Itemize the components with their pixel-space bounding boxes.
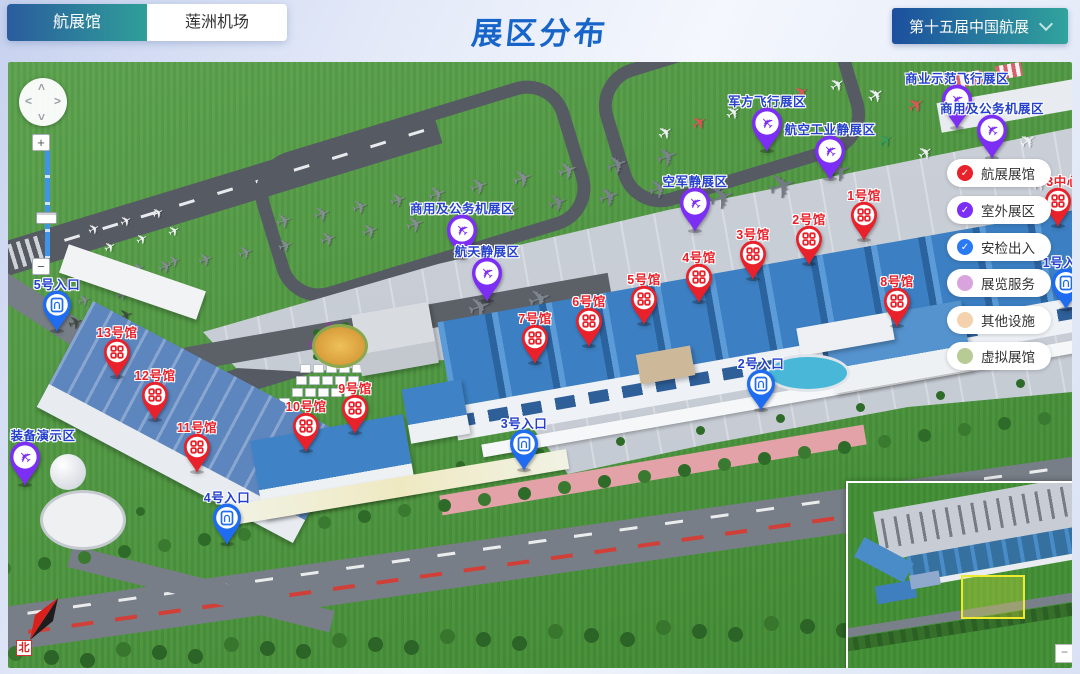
tree: [656, 620, 671, 635]
hall-marker-6号馆[interactable]: 6号馆: [574, 306, 604, 348]
tent: [300, 364, 311, 373]
tree: [78, 551, 91, 564]
tree: [878, 435, 891, 448]
hall-pin-icon: [849, 200, 879, 242]
zoom-out-button[interactable]: −: [32, 258, 50, 275]
entrance-pin-icon: [745, 368, 777, 412]
hall-marker-3号馆[interactable]: 3号馆: [738, 239, 768, 281]
entrance-pin-icon: [508, 428, 540, 472]
tree: [584, 628, 599, 643]
tree: [80, 653, 95, 668]
hall-pin-icon: [291, 411, 321, 453]
tree: [692, 624, 707, 639]
exhibition-map[interactable]: ✈✈✈✈✈✈✈✈✈✈✈✈✈✈✈✈✈✈✈✈✈✈✈✈✈✈✈✈✈✈✈✈✈✈✈✈✈✈✈✈…: [8, 62, 1072, 668]
legend-item-label: 航展展馆: [981, 163, 1035, 183]
outdoor-zone-pin-icon: ✈: [470, 256, 504, 303]
north-compass-icon: [26, 596, 60, 642]
outdoor-zone-pin-icon: ✈: [813, 134, 847, 181]
legend-item-3[interactable]: ✓安检出入: [947, 233, 1051, 261]
hall-marker-1号馆[interactable]: 1号馆: [849, 200, 879, 242]
tent: [296, 376, 307, 385]
outdoor-zone-pin-icon: ✈: [975, 113, 1009, 160]
hall-marker-13号馆[interactable]: 13号馆: [102, 337, 132, 379]
outdoor-zone-pin-icon: ✈: [750, 106, 784, 153]
tree: [638, 470, 651, 483]
tab-airshow-hall[interactable]: 航展馆: [7, 4, 147, 41]
zone-marker-商用及公务机展区[interactable]: 商用及公务机展区 ✈: [975, 113, 1009, 160]
hall-marker-4号馆[interactable]: 4号馆: [684, 262, 714, 304]
minimap-viewport[interactable]: [961, 575, 1025, 619]
tree: [620, 632, 635, 647]
hall-marker-7号馆[interactable]: 7号馆: [520, 323, 550, 365]
zone-marker-军方飞行展区[interactable]: 军方飞行展区 ✈: [750, 106, 784, 153]
entrance-marker-1号入口[interactable]: 1号入口: [1050, 267, 1072, 311]
tree: [918, 429, 931, 442]
legend-dot-icon: [957, 275, 973, 291]
tree: [838, 441, 851, 454]
legend-item-label: 其他设施: [981, 310, 1035, 330]
tree: [518, 487, 531, 500]
zoom-slider-track[interactable]: [45, 151, 50, 258]
entrance-marker-5号入口[interactable]: 5号入口: [41, 289, 73, 333]
legend-item-label: 室外展区: [981, 200, 1035, 220]
tree: [118, 545, 131, 558]
hall-marker-9号馆[interactable]: 9号馆: [340, 393, 370, 435]
tab-lianzhou-airport[interactable]: 莲洲机场: [147, 4, 287, 41]
legend-item-5[interactable]: 其他设施: [947, 306, 1051, 334]
tree: [718, 458, 731, 471]
map-tabs: 航展馆 莲洲机场: [7, 4, 287, 41]
legend-item-4[interactable]: 展览服务: [947, 269, 1051, 297]
demo-pad: [40, 490, 126, 550]
tree: [368, 637, 383, 652]
entrance-pin-icon: [1050, 267, 1072, 311]
pan-left-icon[interactable]: ˂: [25, 94, 32, 108]
hall-marker-5号馆[interactable]: 5号馆: [629, 284, 659, 326]
tree: [332, 633, 347, 648]
legend-item-6[interactable]: 虚拟展馆: [947, 342, 1051, 370]
entrance-marker-3号入口[interactable]: 3号入口: [508, 428, 540, 472]
outdoor-zone-pin-icon: ✈: [678, 186, 712, 233]
chevron-down-icon: [1039, 16, 1053, 30]
entrance-pin-icon: [41, 289, 73, 333]
hall-marker-8号馆[interactable]: 8号馆: [882, 286, 912, 328]
hall-pin-icon: [574, 306, 604, 348]
hall-marker-2号馆[interactable]: 2号馆: [794, 224, 824, 266]
zone-marker-装备演示区[interactable]: 装备演示区 ✈: [8, 440, 42, 487]
pan-down-icon[interactable]: ˅: [38, 110, 45, 124]
legend-check-icon: ✓: [957, 202, 973, 218]
entrance-pin-icon: [211, 502, 243, 546]
legend-dot-icon: [957, 348, 973, 364]
tree: [116, 642, 131, 657]
tent: [313, 364, 324, 373]
legend-item-2[interactable]: ✓室外展区: [947, 196, 1051, 224]
hall-pin-icon: [738, 239, 768, 281]
tree: [1038, 412, 1051, 425]
hall-pin-icon: [882, 286, 912, 328]
outdoor-zone-pin-icon: ✈: [8, 440, 42, 487]
pan-up-icon[interactable]: ˄: [38, 80, 45, 94]
minimap-collapse-button[interactable]: −: [1055, 644, 1072, 663]
tree: [136, 507, 145, 516]
dome-structure: [50, 454, 86, 490]
tree: [678, 464, 691, 477]
edition-dropdown[interactable]: 第十五届中国航展: [892, 8, 1068, 44]
legend-item-label: 虚拟展馆: [981, 346, 1035, 366]
zoom-in-button[interactable]: +: [32, 134, 50, 151]
legend-dot-icon: [957, 312, 973, 328]
tree: [438, 499, 451, 512]
entrance-marker-2号入口[interactable]: 2号入口: [745, 368, 777, 412]
tent: [309, 376, 320, 385]
legend-item-1[interactable]: ✓航展展馆: [947, 159, 1051, 187]
flowerbed: [312, 324, 368, 368]
tent: [322, 376, 333, 385]
tree: [440, 629, 455, 644]
hall-marker-11号馆[interactable]: 11号馆: [182, 432, 212, 474]
tree: [188, 649, 203, 664]
hall-pin-icon: [794, 224, 824, 266]
zoom-slider-handle[interactable]: [36, 212, 57, 224]
tree: [44, 650, 59, 665]
zone-marker-航空工业静展区[interactable]: 航空工业静展区 ✈: [813, 134, 847, 181]
minimap[interactable]: −: [846, 481, 1072, 668]
tree: [318, 516, 331, 529]
hall-pin-icon: [684, 262, 714, 304]
zone-marker-航天静展区[interactable]: 航天静展区 ✈: [470, 256, 504, 303]
edition-dropdown-label: 第十五届中国航展: [909, 16, 1029, 37]
tree: [512, 636, 527, 651]
legend-check-icon: ✓: [957, 165, 973, 181]
hall-marker-10号馆[interactable]: 10号馆: [291, 411, 321, 453]
legend-item-label: 展览服务: [981, 273, 1035, 293]
legend-item-label: 安检出入: [981, 237, 1035, 257]
hall-marker-12号馆[interactable]: 12号馆: [140, 380, 170, 422]
tree: [764, 616, 779, 631]
hall-pin-icon: [520, 323, 550, 365]
tree: [38, 557, 51, 570]
hall-pin-icon: [182, 432, 212, 474]
hall-pin-icon: [629, 284, 659, 326]
hall9-building: [402, 379, 471, 444]
tree: [478, 493, 491, 506]
entrance-marker-4号入口[interactable]: 4号入口: [211, 502, 243, 546]
pan-right-icon[interactable]: ˃: [54, 94, 61, 108]
zone-marker-空军静展区[interactable]: 空军静展区 ✈: [678, 186, 712, 233]
hall-pin-icon: [102, 337, 132, 379]
hall-pin-icon: [340, 393, 370, 435]
pan-control[interactable]: ˄ ˅ ˂ ˃: [19, 78, 67, 126]
tree: [260, 641, 275, 656]
hall-pin-icon: [140, 380, 170, 422]
legend-check-icon: ✓: [957, 239, 973, 255]
north-label: 北: [16, 640, 32, 656]
